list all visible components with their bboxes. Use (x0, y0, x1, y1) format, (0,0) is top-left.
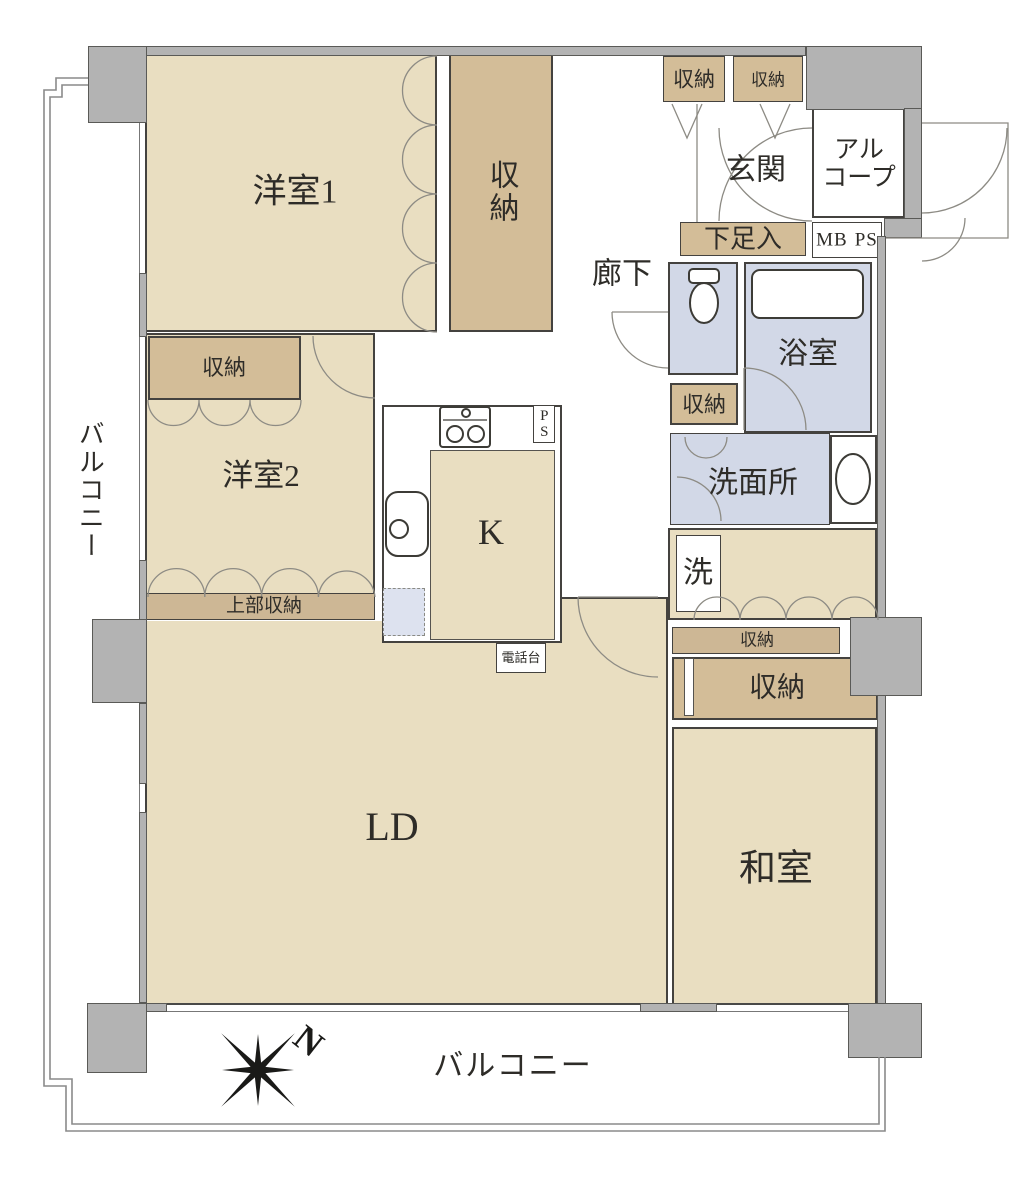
vanity-box (830, 435, 877, 524)
label-alcove-line2: コープ (822, 164, 896, 192)
compass-north-label: N (286, 1017, 331, 1065)
label-laundry: 洗 (683, 557, 713, 590)
label-bath: 浴室 (778, 338, 838, 371)
label-closet-yoshitsu2: 収納 (202, 356, 246, 380)
wall-topright-strip (904, 108, 922, 220)
room-toilet (668, 262, 738, 375)
closet-door-mark-b (760, 104, 790, 138)
pillar-mid-right (850, 617, 922, 696)
wall-top (145, 46, 806, 56)
closet-door-mark-a (672, 104, 702, 138)
label-phone-stand: 電話台 (501, 651, 540, 665)
bathtub (751, 269, 864, 319)
label-ld: LD (365, 805, 418, 849)
pillar-bottom-left (87, 1003, 147, 1073)
label-rouka: 廊下 (592, 258, 652, 291)
label-alcove-line1: アル (822, 137, 896, 165)
floor-plan: N 洋室1 収納 廊下 収納 収納 玄関 アル コープ MBPS 下足入 浴室 … (0, 0, 1034, 1200)
label-closet-genkan-b: 収納 (751, 72, 785, 91)
label-yoshitsu2: 洋室2 (222, 459, 300, 493)
wall-left-seg2 (139, 560, 147, 620)
label-mbps: MBPS (816, 231, 878, 252)
label-closet-toilet-side: 収納 (682, 393, 726, 417)
compass-rose: N (221, 1017, 331, 1107)
wall-bottom-seg1 (145, 1003, 167, 1012)
label-yoshitsu1: 洋室1 (253, 173, 338, 210)
label-upper-storage: 上部収納 (226, 597, 302, 618)
label-senmenjo: 洗面所 (708, 467, 798, 500)
label-closet-genkan-a: 収納 (673, 68, 715, 91)
label-balcony-left: バルコニー (75, 420, 104, 560)
closet-door-leaf (684, 658, 694, 716)
entry-outer-door-arc1 (922, 128, 1007, 213)
wall-topright-block (806, 46, 922, 110)
label-ps: PS (855, 230, 878, 251)
wall-bottom-seg2 (640, 1003, 717, 1012)
label-washitsu: 和室 (739, 850, 813, 891)
toilet-door-arc (612, 312, 668, 368)
label-genkan: 玄関 (726, 154, 786, 187)
label-closet-washitsu: 収納 (749, 674, 805, 705)
entry-outer-door-arc2 (922, 218, 965, 261)
label-mb: MB (816, 230, 848, 251)
pillar-mid-left (92, 619, 147, 703)
wall-bottom (145, 1003, 880, 1012)
wall-left-seg3 (139, 703, 147, 784)
fridge-space (383, 588, 425, 636)
wall-left-seg4 (139, 812, 147, 1003)
label-ps-shaft: PS (536, 408, 553, 440)
label-closet-tall: 収納 (485, 159, 518, 225)
wall-left-seg1 (139, 273, 147, 337)
label-alcove: アル コープ (822, 137, 896, 192)
pillar-bottom-right (848, 1003, 922, 1058)
label-kitchen: K (478, 513, 504, 553)
label-closet-strip-right: 収納 (740, 632, 774, 651)
wall-alcove-bottom (884, 218, 922, 238)
label-balcony-bottom: バルコニー (433, 1050, 592, 1083)
pillar-top-left (88, 46, 147, 123)
label-shoe-cabinet: 下足入 (704, 226, 782, 255)
